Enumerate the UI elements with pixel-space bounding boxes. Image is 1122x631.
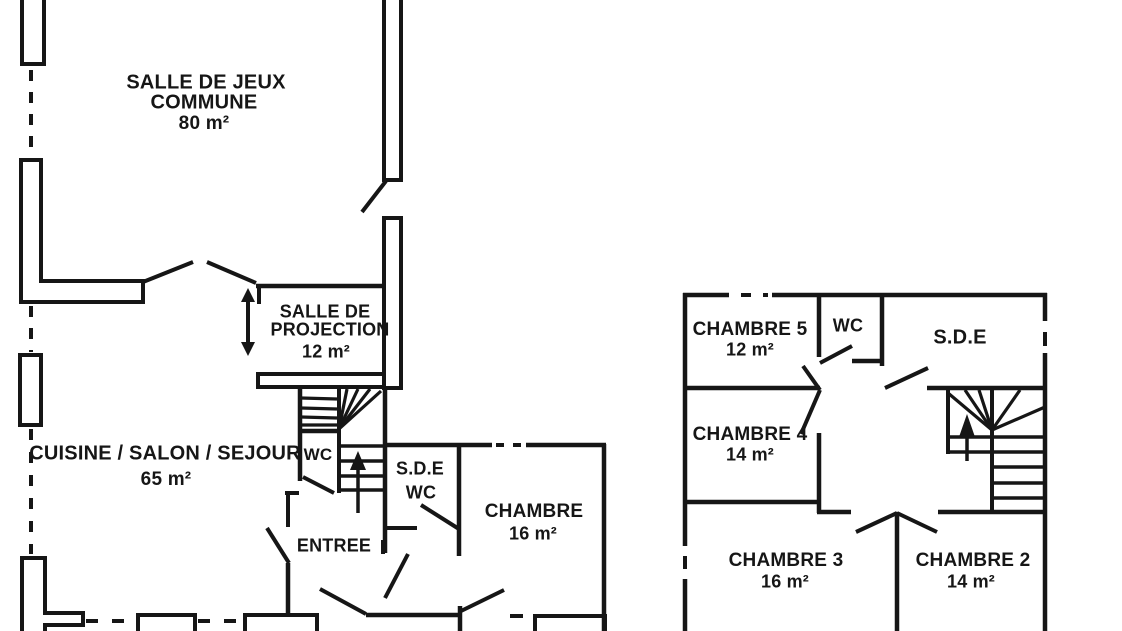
wall xyxy=(258,374,384,387)
door-swings xyxy=(801,346,937,532)
room-label-cuisine-salon-sejour: CUISINE / SALON / SEJOUR xyxy=(29,443,301,466)
room-area-chambre-ground: 16 m² xyxy=(509,524,557,545)
door-swing xyxy=(820,346,852,363)
door-swing xyxy=(461,590,504,611)
arrow-head xyxy=(959,414,975,437)
wall xyxy=(384,218,401,388)
room-label-chambre4: CHAMBRE 4 xyxy=(693,424,808,446)
door-swing xyxy=(856,513,897,532)
room-label-salle-de-projection-line2: PROJECTION xyxy=(270,320,389,341)
room-area-chambre4: 14 m² xyxy=(726,445,774,466)
window xyxy=(138,615,195,631)
room-label-chambre-ground: CHAMBRE xyxy=(485,501,584,523)
room-area-cuisine-salon-sejour: 65 m² xyxy=(141,469,192,491)
door-swing xyxy=(885,368,928,388)
window-pier xyxy=(22,0,44,64)
room-label-sde-wc-line1: S.D.E xyxy=(396,459,444,480)
stair-tread xyxy=(301,408,337,409)
arrow-head xyxy=(241,342,255,356)
wall xyxy=(21,160,143,302)
door-swing xyxy=(207,262,256,283)
room-label-entree: ENTREE xyxy=(297,536,371,557)
door-swing xyxy=(303,477,334,493)
door-swing xyxy=(421,505,459,529)
door-swing xyxy=(362,181,386,212)
staircase-ground xyxy=(301,387,385,493)
room-label-wc-first: WC xyxy=(833,316,863,337)
room-area-salle-de-jeux: 80 m² xyxy=(179,113,230,135)
arrow-head xyxy=(241,288,255,302)
door-swing xyxy=(320,589,366,614)
dashed-boundaries xyxy=(31,70,524,621)
room-label-sde-wc-line2: WC xyxy=(406,483,436,504)
staircase-first xyxy=(948,390,1045,512)
floor-plan-image: SALLE DE JEUX COMMUNE 80 m² SALLE DE PRO… xyxy=(0,0,1122,631)
door-swing xyxy=(897,513,937,532)
room-area-salle-de-projection: 12 m² xyxy=(302,342,350,363)
room-label-chambre5: CHAMBRE 5 xyxy=(693,319,808,341)
stair-tread xyxy=(301,417,337,418)
double-arrow-icon xyxy=(241,288,255,356)
room-area-chambre2: 14 m² xyxy=(947,572,995,593)
window xyxy=(245,615,317,631)
room-label-wc-ground: WC xyxy=(304,445,333,465)
wall xyxy=(384,0,401,180)
door-swing xyxy=(143,262,193,282)
room-label-salle-de-jeux-line2: COMMUNE xyxy=(151,92,258,115)
room-label-chambre2: CHAMBRE 2 xyxy=(916,550,1031,572)
stair-tread xyxy=(301,398,337,399)
room-area-chambre5: 12 m² xyxy=(726,340,774,361)
room-label-chambre3: CHAMBRE 3 xyxy=(729,550,844,572)
wall xyxy=(22,558,83,631)
room-label-sde-first: S.D.E xyxy=(933,327,986,350)
door-swing xyxy=(385,554,408,598)
window xyxy=(535,616,605,631)
window-pier xyxy=(20,355,41,425)
door-swing xyxy=(267,528,289,563)
room-area-chambre3: 16 m² xyxy=(761,572,809,593)
